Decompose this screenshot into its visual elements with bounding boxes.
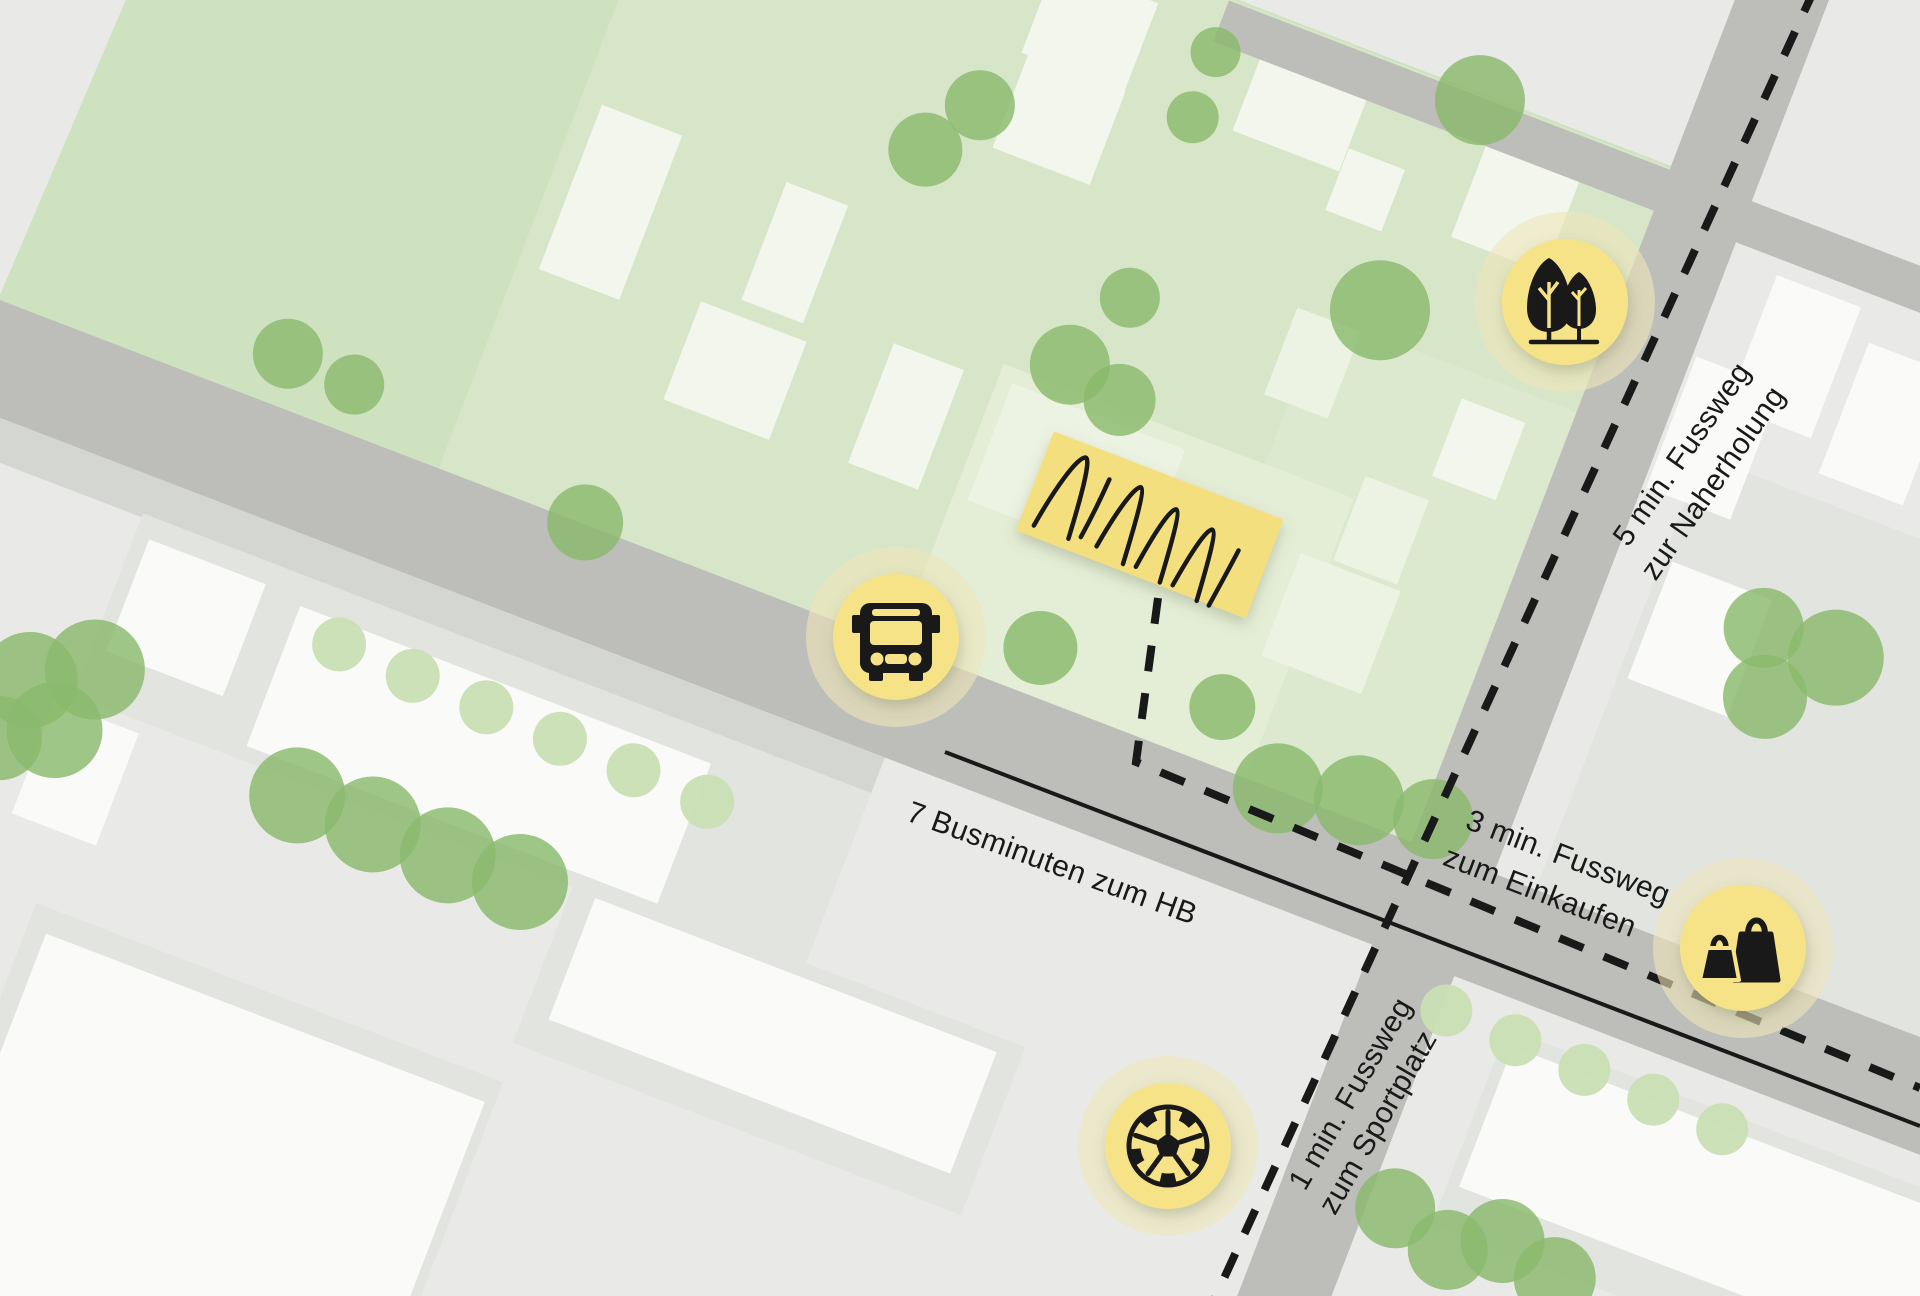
- sports-badge: [1078, 1056, 1258, 1236]
- shopping-badge: [1653, 858, 1833, 1038]
- recreation-badge: [1475, 212, 1655, 392]
- bus-icon: [852, 603, 940, 681]
- bus-stop-badge: [806, 547, 986, 727]
- soccer-ball-icon: [1129, 1107, 1207, 1185]
- map-canvas: 7 Busminuten zum HB 5 min. Fussweg zur N…: [0, 0, 1920, 1296]
- location-map: 7 Busminuten zum HB 5 min. Fussweg zur N…: [0, 0, 1920, 1296]
